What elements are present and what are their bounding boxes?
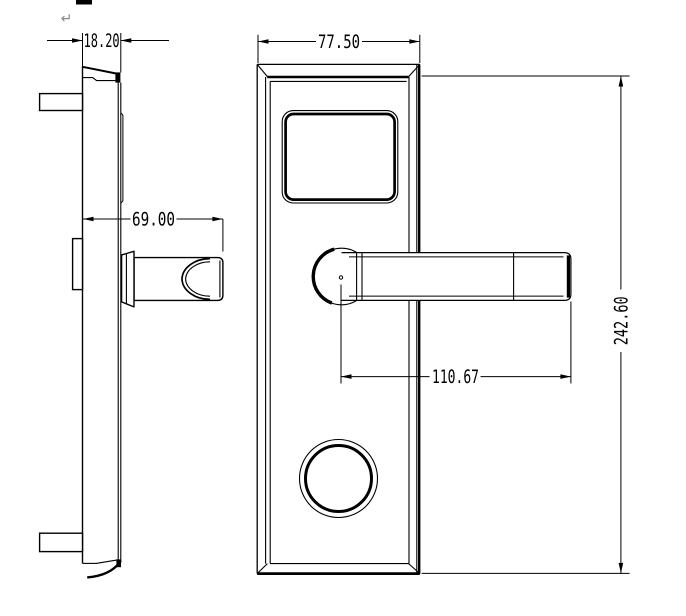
side-handle-collar [122, 251, 134, 307]
dimension-plate-width: 77.50 [258, 32, 420, 63]
bevel-corner [257, 564, 267, 574]
front-handle [313, 248, 571, 305]
text-cursor-artifact [76, 0, 92, 5]
arrow-down-icon [619, 563, 624, 574]
card-reader-window-outer [282, 111, 398, 203]
arrow-right-icon [560, 374, 571, 379]
dimension-value: 18.20 [84, 31, 120, 52]
card-reader-window [286, 114, 395, 200]
side-bottom-cap [83, 559, 122, 577]
side-handle [122, 251, 223, 307]
side-rear-knob [73, 239, 83, 290]
document-artifacts: ↵ [61, 0, 92, 27]
handle-lever [342, 253, 571, 301]
arrow-right-icon [72, 38, 83, 43]
side-latch-top [40, 94, 83, 111]
drawing-canvas: ↵ [0, 0, 686, 616]
dimension-value: 110.67 [432, 367, 479, 388]
dimension-plate-height: 242.60 [422, 76, 633, 573]
dimension-plate-thickness: 18.20 [47, 31, 169, 52]
cap-slant [83, 67, 117, 74]
side-handle-grip [134, 258, 223, 301]
key-cylinder [306, 446, 372, 512]
cylinder-ring-outer [300, 440, 378, 518]
front-view: 77.50 [257, 32, 632, 574]
side-latch-bottom [40, 533, 83, 551]
bevel-corner [257, 65, 267, 77]
dimension-value: 77.50 [318, 32, 360, 53]
cap-end [115, 72, 120, 82]
side-top-cap [83, 67, 121, 83]
arrow-left-icon [341, 374, 352, 379]
arrow-left-icon [83, 217, 94, 222]
cap-slant [96, 560, 118, 564]
cap-notch [83, 78, 116, 81]
return-icon: ↵ [61, 11, 73, 27]
side-view: 69.00 18.20 [40, 31, 223, 577]
bevel-corner [409, 564, 420, 574]
dimension-value: 242.60 [611, 296, 632, 345]
front-plate [257, 64, 420, 573]
arrow-right-icon [212, 217, 223, 222]
cap-end [116, 559, 121, 567]
arrow-up-icon [619, 76, 624, 87]
bevel-corner [409, 65, 420, 77]
dimension-value: 69.00 [132, 210, 175, 231]
dimension-handle-projection: 69.00 [83, 210, 223, 252]
arrow-right-icon [409, 39, 420, 44]
arrow-left-icon [258, 39, 269, 44]
arrow-left-icon [121, 38, 132, 43]
